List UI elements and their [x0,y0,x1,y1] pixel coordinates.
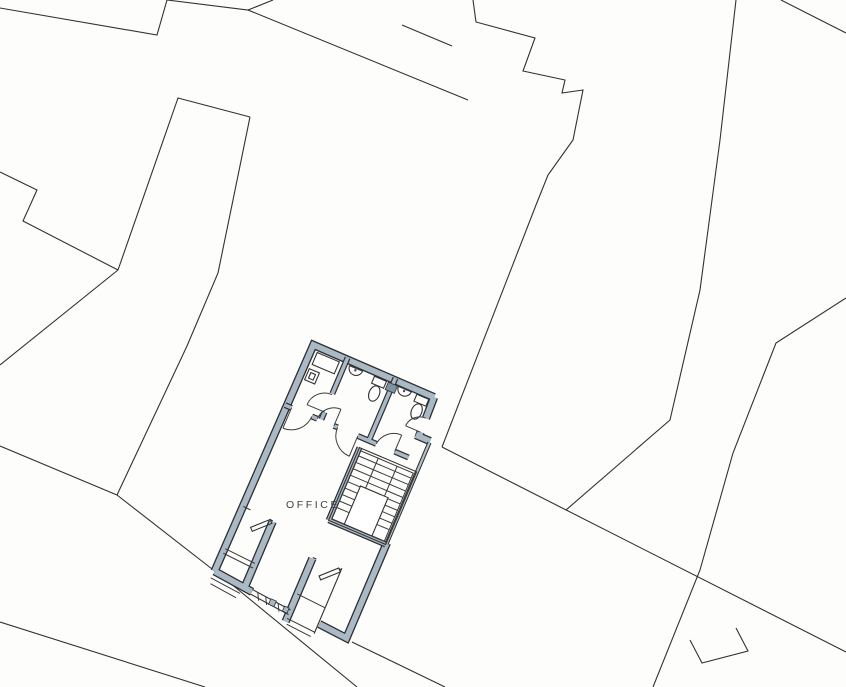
parcel-outline [118,98,250,270]
floor-plan-drawing: OFFICE [0,0,846,687]
parcel-outline [442,205,536,447]
lobby-sink [305,369,320,384]
porch-head-wall [313,558,342,570]
wall-outline-fill [207,344,447,646]
room-label-office: OFFICE [286,499,340,511]
parcel-outline [248,10,468,100]
bay-head-wall [242,506,273,521]
parcel-outline [653,298,846,687]
parcel-outline [0,446,117,495]
parcel-outline [167,0,273,10]
parcel-outline [117,117,250,495]
exterior-walls [207,344,447,646]
parcel-outline [781,0,846,33]
door-arc-office-corridor [329,427,358,456]
glazing-mullion [268,599,276,607]
site-boundaries [0,0,846,687]
parcel-outline [0,172,118,270]
site-plan-canvas: OFFICE [0,0,846,687]
parcel-outline [442,447,846,652]
door-arc-wc1 [317,402,341,426]
parcel-outline [473,0,583,205]
glazed-shopfront [249,590,292,616]
parcel-outline [0,622,205,687]
parcel-outline [690,628,748,663]
porch-sill-line [297,594,326,608]
parcel-outline [0,0,167,35]
parcel-outline [566,0,736,510]
parcel-outline [402,25,452,46]
door-arc-wc2 [376,427,401,451]
porch-side-wall [314,568,342,633]
staircase [329,448,417,545]
porch-door-leaf [318,562,342,586]
glazing-ticks [254,592,283,611]
parcel-outline [0,270,118,365]
parcel-outline [352,642,445,687]
building-plan [205,342,448,649]
